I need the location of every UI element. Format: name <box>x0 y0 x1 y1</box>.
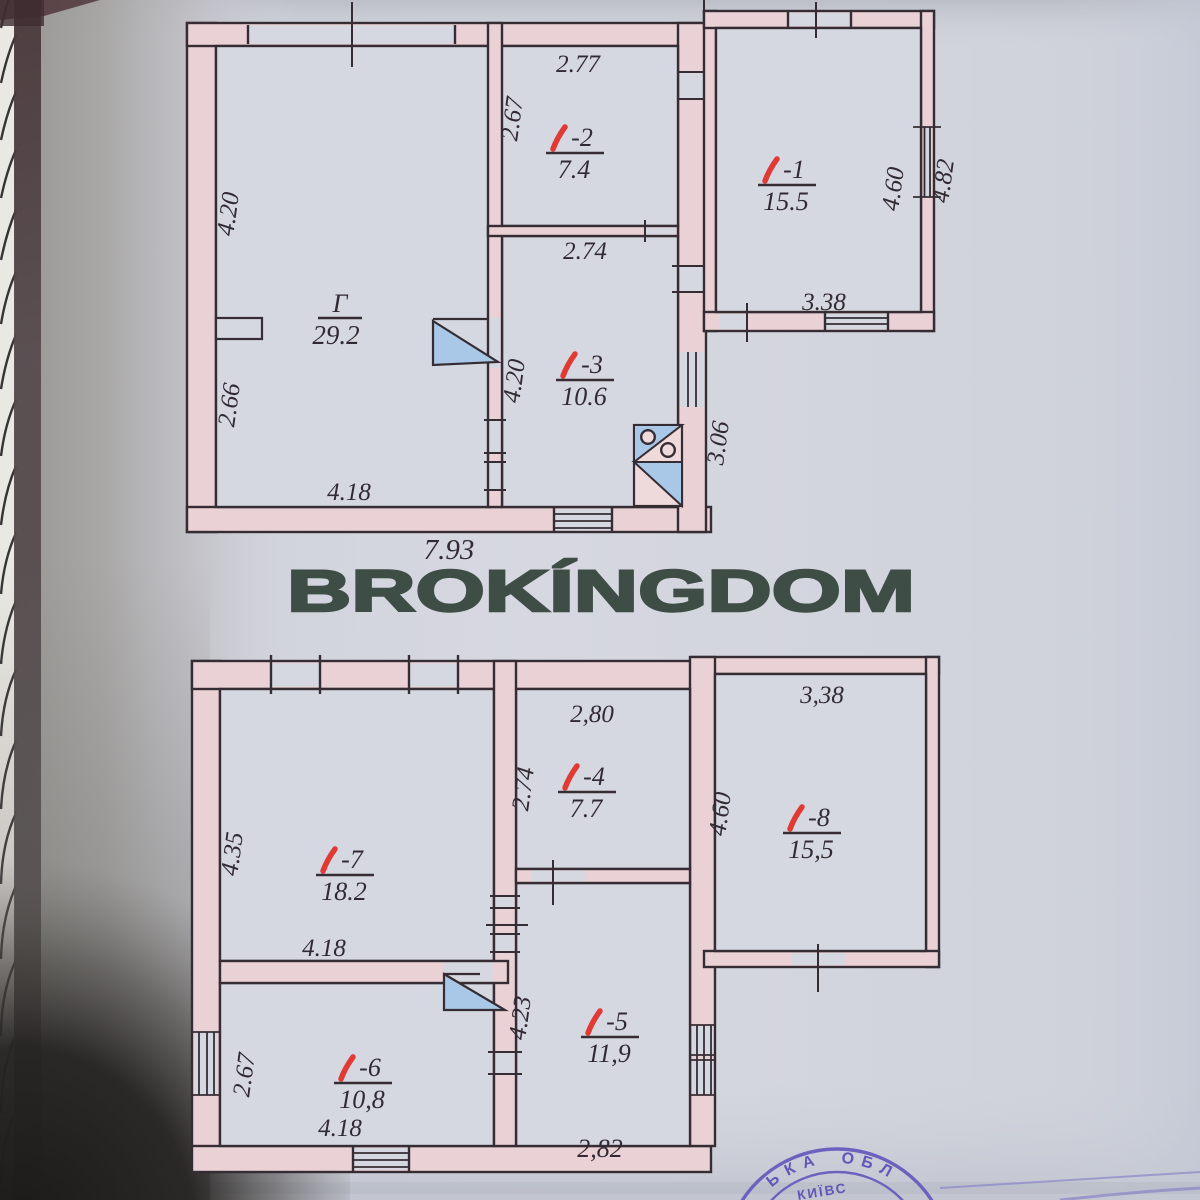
svg-text:Г: Г <box>332 289 349 318</box>
svg-text:-4: -4 <box>583 762 605 791</box>
svg-text:7.4: 7.4 <box>558 155 591 184</box>
svg-text:2,82: 2,82 <box>577 1134 623 1163</box>
svg-text:7.7: 7.7 <box>570 794 604 823</box>
svg-text:3,38: 3,38 <box>799 682 844 709</box>
svg-text:-6: -6 <box>359 1053 381 1082</box>
svg-text:11,9: 11,9 <box>587 1039 631 1068</box>
svg-text:4.18: 4.18 <box>318 1115 362 1142</box>
svg-text:О: О <box>841 1150 855 1168</box>
svg-text:-1: -1 <box>783 155 805 184</box>
svg-text:15.5: 15.5 <box>763 187 809 216</box>
svg-text:10,8: 10,8 <box>339 1085 385 1114</box>
svg-text:-7: -7 <box>341 845 364 874</box>
svg-text:BROKÍNGDOM: BROKÍNGDOM <box>287 559 915 624</box>
svg-text:-5: -5 <box>606 1007 628 1036</box>
svg-text:2.77: 2.77 <box>556 51 601 78</box>
svg-text:15,5: 15,5 <box>788 835 834 864</box>
svg-text:4.18: 4.18 <box>327 479 371 506</box>
svg-text:2.74: 2.74 <box>563 238 607 265</box>
svg-text:18.2: 18.2 <box>321 877 367 906</box>
svg-text:3.38: 3.38 <box>801 289 846 316</box>
svg-text:-8: -8 <box>808 803 830 832</box>
svg-text:-3: -3 <box>581 350 603 379</box>
svg-text:10.6: 10.6 <box>561 382 607 411</box>
svg-text:29.2: 29.2 <box>312 320 359 350</box>
svg-text:-2: -2 <box>571 123 593 152</box>
svg-text:4.18: 4.18 <box>302 935 346 962</box>
svg-text:2,80: 2,80 <box>570 701 614 728</box>
